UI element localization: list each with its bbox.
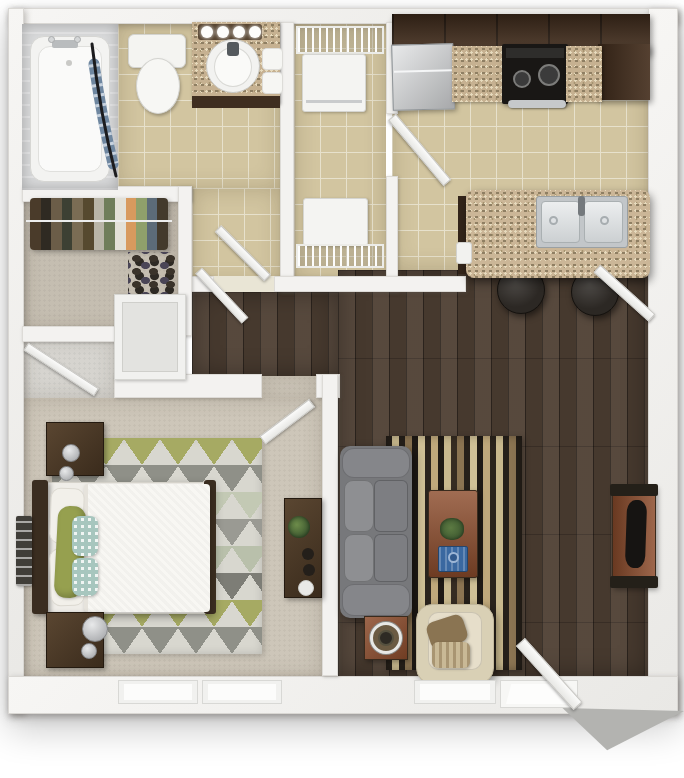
washer-control-line — [306, 100, 362, 103]
vanity-bulb-icon — [201, 26, 213, 38]
floor-plan-canvas — [0, 0, 684, 778]
sofa-seat-cushion — [374, 480, 408, 532]
wall-laundry-kitchen-lower — [386, 176, 398, 292]
vanity-towel — [262, 72, 283, 94]
toilet-bowl — [136, 58, 180, 114]
sink-drain-icon — [600, 216, 609, 225]
decor-bowl-icon — [303, 564, 315, 576]
bathroom-floor-lower — [192, 188, 280, 284]
vanity-bulb-icon — [233, 26, 245, 38]
kitchen-corner-cabinet — [598, 44, 650, 100]
kitchen-counter-right — [566, 46, 602, 102]
tv-icon — [625, 500, 647, 569]
laundry-wire-shelf-bottom — [296, 244, 384, 268]
front-door-shadow — [560, 708, 684, 756]
oven-handle — [508, 100, 566, 108]
island-faucet-icon — [578, 196, 585, 216]
island-sink-bowl-left — [541, 201, 580, 243]
stove-burner-icon — [513, 70, 531, 88]
bedroom-window-pane — [208, 684, 276, 700]
bedroom-wall-art — [16, 516, 32, 586]
stove-back-panel — [506, 48, 564, 58]
bedroom-door-threshold — [262, 376, 316, 398]
closet-rod — [26, 220, 172, 222]
laundry-wire-shelf-top — [296, 26, 384, 54]
linen-closet-door-panel — [122, 302, 178, 372]
dryer — [303, 198, 368, 246]
closet-hanging-clothes — [30, 198, 168, 250]
wall-closet-bottom — [22, 326, 122, 342]
bed-accent-pillow-teal — [72, 516, 98, 556]
vanity-bulb-icon — [249, 26, 261, 38]
bed-duvet — [84, 484, 210, 612]
refrigerator — [391, 43, 455, 111]
tray-dish-icon — [448, 552, 459, 563]
exterior-wall-right — [648, 8, 678, 714]
kitchen-counter-left — [452, 46, 506, 102]
lamp-base-icon — [59, 466, 74, 481]
armchair-pillow-striped — [432, 642, 470, 668]
bed-headboard — [32, 480, 48, 614]
island-dishwasher-front — [456, 242, 472, 264]
decor-bowl-icon — [302, 548, 314, 560]
sofa-armrest-top — [342, 448, 410, 478]
wall-hall-top-right — [274, 276, 466, 292]
washer — [302, 54, 366, 112]
vanity-cabinet-edge — [192, 96, 280, 108]
decor-plate-icon — [298, 580, 314, 596]
sofa-back-cushion — [344, 480, 374, 532]
sink-drain-icon — [549, 216, 558, 225]
vanity-bulb-icon — [217, 26, 229, 38]
living-window-pane — [420, 684, 490, 700]
bed-accent-pillow-teal — [72, 558, 98, 596]
stove-burner-icon — [538, 64, 560, 86]
sofa-back-cushion — [344, 534, 374, 582]
media-console-cap-bottom — [610, 576, 658, 588]
bedroom-window-pane — [124, 684, 192, 700]
wall-bedroom-living — [322, 374, 338, 676]
lamp-base-icon — [81, 643, 97, 659]
sofa-seat-cushion — [374, 534, 408, 582]
entry-nook-floor — [22, 336, 115, 398]
coffee-table-plant-icon — [440, 518, 464, 540]
hallway-floor — [192, 292, 338, 376]
decor-bowl-center-icon — [378, 630, 394, 646]
media-console-cap-top — [610, 484, 658, 496]
table-lamp-icon — [62, 444, 80, 462]
table-lamp-icon — [82, 616, 108, 642]
sofa-armrest-bottom — [342, 584, 410, 616]
vanity-faucet-icon — [227, 42, 239, 56]
vanity-towel — [262, 48, 283, 70]
potted-plant-icon — [288, 516, 310, 538]
shower-curtain — [20, 24, 124, 192]
